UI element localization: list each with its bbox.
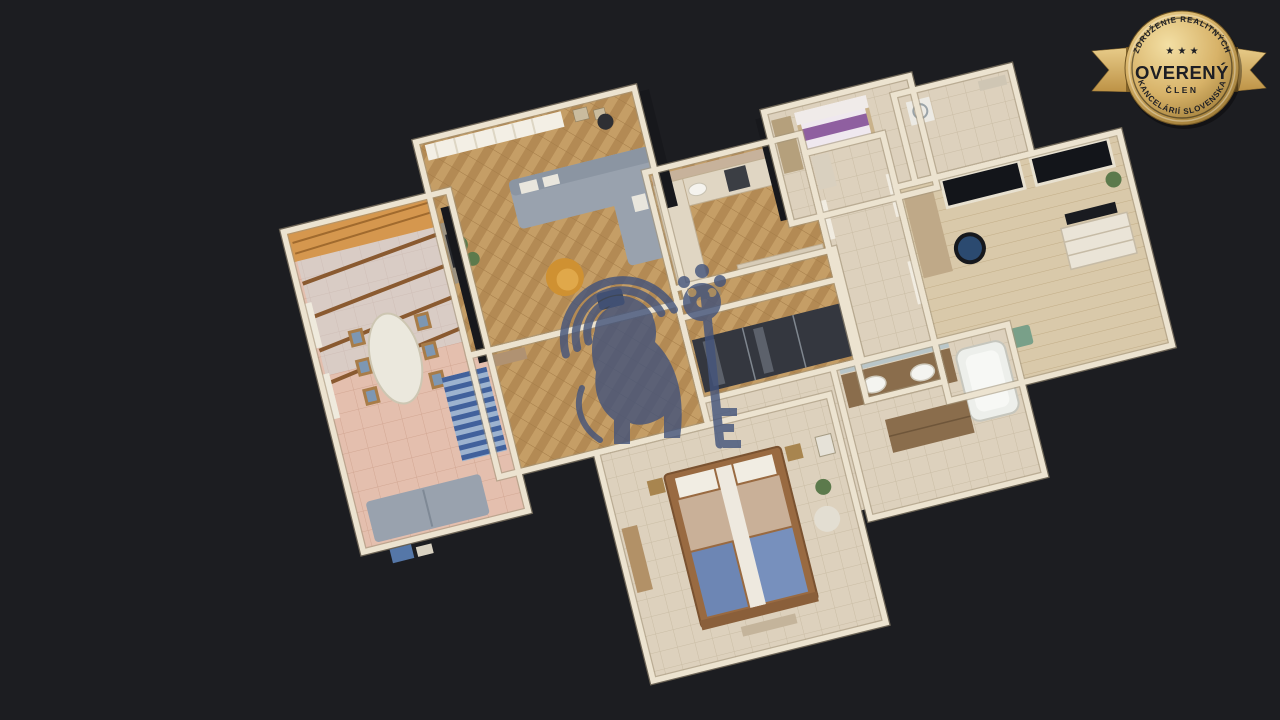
key-bow-petal bbox=[678, 276, 690, 288]
screenshot-stage: ZDRUŽENIE REALITNÝCH ★ ★ ★ OVERENÝ ČLEN … bbox=[0, 0, 1280, 720]
key-bow-petal bbox=[695, 264, 709, 278]
dollhouse-3d-view: ZDRUŽENIE REALITNÝCH ★ ★ ★ OVERENÝ ČLEN … bbox=[0, 0, 1280, 720]
key-bow-petal bbox=[714, 275, 726, 287]
badge-title: OVERENÝ bbox=[1135, 62, 1229, 83]
badge-subtitle: ČLEN bbox=[1166, 84, 1199, 95]
badge-stars: ★ ★ ★ bbox=[1165, 46, 1198, 57]
